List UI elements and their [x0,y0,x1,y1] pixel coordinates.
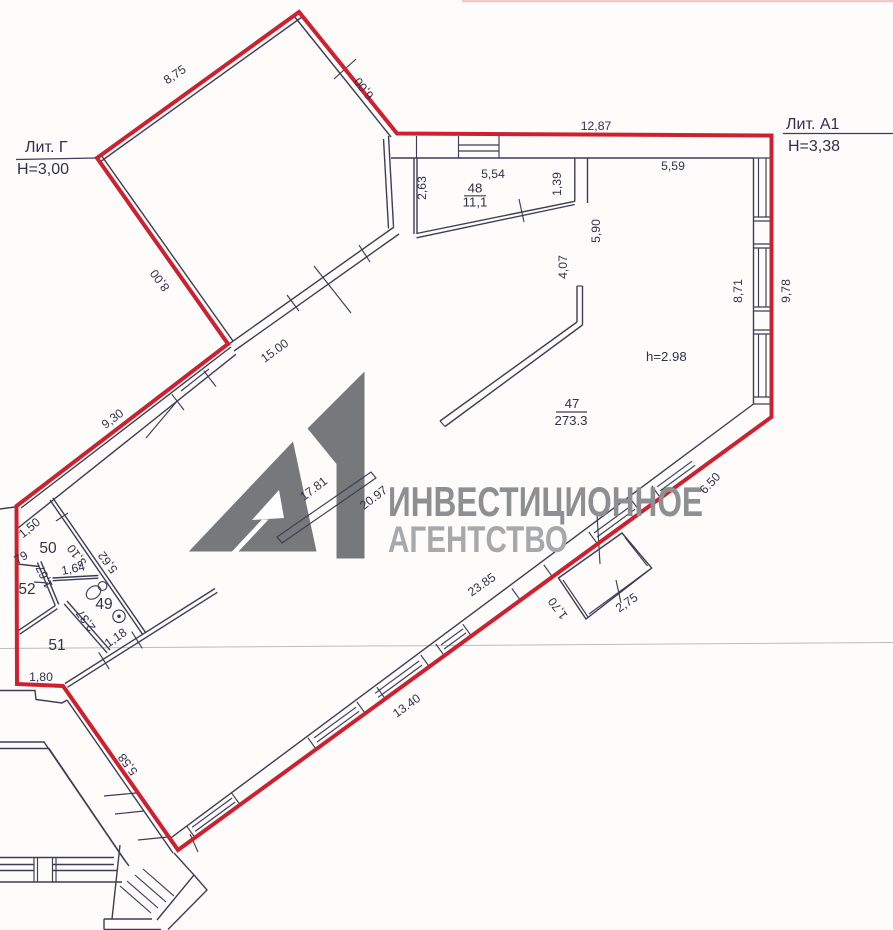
svg-text:52: 52 [18,581,35,598]
svg-text:1,80: 1,80 [29,670,53,684]
svg-text:15.00: 15.00 [258,336,291,365]
svg-text:ИНВЕСТИЦИОННОЕ: ИНВЕСТИЦИОННОЕ [388,478,703,525]
svg-text:5,90: 5,90 [589,219,603,243]
svg-text:h=2.98: h=2.98 [646,349,687,364]
svg-text:13.40: 13.40 [390,691,423,720]
svg-text:1,67: 1,67 [33,563,56,591]
svg-text:50: 50 [39,540,57,557]
svg-text:12,87: 12,87 [581,119,612,133]
svg-text:48: 48 [468,181,483,196]
svg-text:11,1: 11,1 [463,195,488,210]
svg-text:Лит. Г: Лит. Г [25,139,68,156]
svg-text:2,63: 2,63 [415,176,429,200]
svg-text:1,70: 1,70 [545,595,571,623]
svg-text:5,59: 5,59 [661,159,685,173]
svg-text:АГЕНТСТВО: АГЕНТСТВО [388,519,568,560]
svg-text:8,00: 8,00 [147,267,173,295]
svg-text:Н=3,38: Н=3,38 [788,138,840,155]
svg-text:79: 79 [12,548,31,567]
svg-text:8,75: 8,75 [161,62,189,87]
svg-text:1,39: 1,39 [550,172,564,196]
svg-text:1,50: 1,50 [16,515,43,541]
svg-text:273.3: 273.3 [554,413,587,428]
svg-text:Н=3,00: Н=3,00 [17,161,69,178]
svg-text:5,54: 5,54 [481,167,505,181]
svg-text:23.85: 23.85 [465,570,498,599]
svg-text:47: 47 [565,396,580,411]
svg-text:17.81: 17.81 [297,474,330,504]
svg-text:8,71: 8,71 [731,279,745,303]
svg-text:4,07: 4,07 [556,255,570,279]
svg-text:9,30: 9,30 [99,406,127,432]
svg-text:51: 51 [48,637,65,654]
svg-text:9,78: 9,78 [779,279,793,303]
svg-text:49: 49 [95,596,112,613]
svg-text:Лит. А1: Лит. А1 [786,116,840,133]
